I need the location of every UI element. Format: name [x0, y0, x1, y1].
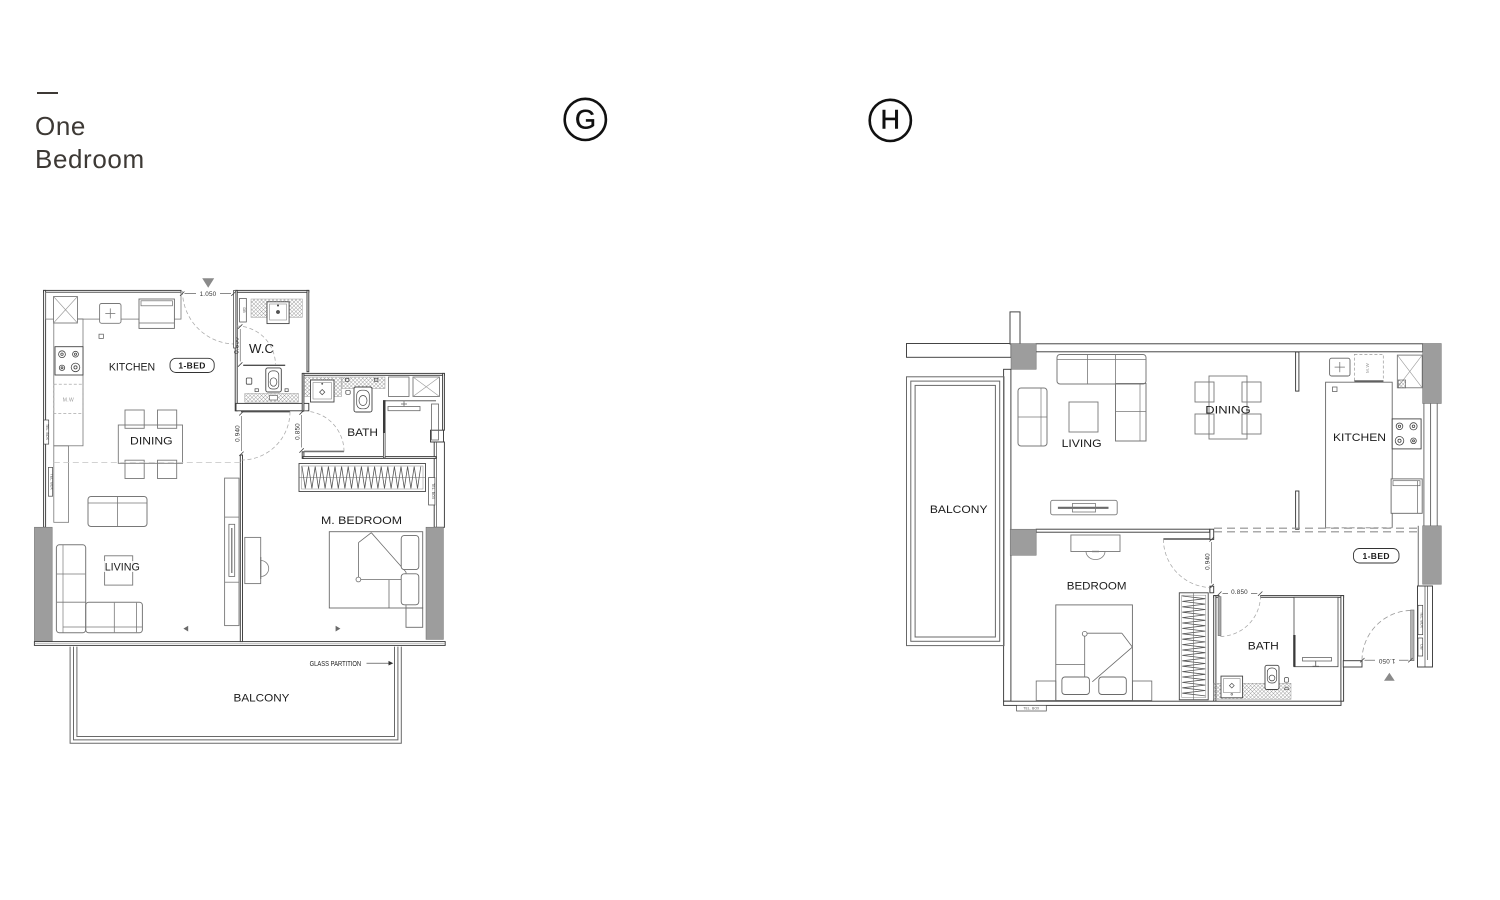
svg-text:KITCHEN: KITCHEN	[1333, 432, 1386, 444]
svg-text:GLASS PARTITION: GLASS PARTITION	[310, 661, 362, 668]
svg-text:H: H	[881, 104, 901, 134]
svg-text:0.940: 0.940	[235, 425, 242, 442]
svg-text:DINING: DINING	[130, 436, 173, 448]
svg-text:BALCONY: BALCONY	[234, 693, 291, 705]
svg-text:BATH: BATH	[1248, 641, 1279, 653]
svg-text:TEL. BOX: TEL. BOX	[1023, 707, 1040, 711]
svg-text:M. BEDROOM: M. BEDROOM	[321, 515, 402, 527]
svg-text:TEL. BOX: TEL. BOX	[1419, 612, 1423, 629]
svg-text:LIVING: LIVING	[105, 562, 140, 574]
svg-text:G: G	[575, 104, 596, 134]
svg-text:M.W: M.W	[1365, 363, 1370, 373]
svg-text:BALCONY: BALCONY	[930, 504, 988, 516]
svg-text:LIVING: LIVING	[1062, 438, 1102, 450]
svg-text:1.050: 1.050	[1378, 657, 1395, 664]
svg-text:TEL. BOX: TEL. BOX	[50, 474, 54, 491]
svg-text:M.W: M.W	[63, 398, 74, 404]
svg-text:BEDROOM: BEDROOM	[1067, 580, 1127, 592]
svg-text:0.850: 0.850	[295, 423, 302, 440]
svg-text:BATH: BATH	[347, 427, 378, 439]
svg-text:1.050: 1.050	[200, 291, 217, 298]
svg-text:0.940: 0.940	[1205, 553, 1212, 570]
svg-text:DB: DB	[242, 307, 246, 313]
svg-text:TEL. BOX: TEL. BOX	[431, 483, 435, 500]
svg-text:TEL. BOX: TEL. BOX	[45, 424, 49, 441]
svg-text:KITCHEN: KITCHEN	[109, 361, 155, 373]
svg-text:DINING: DINING	[1205, 404, 1250, 416]
svg-text:0.850: 0.850	[1231, 589, 1248, 596]
svg-text:W.C: W.C	[249, 342, 274, 356]
svg-text:1-BED: 1-BED	[1362, 551, 1390, 561]
svg-text:1-BED: 1-BED	[178, 360, 206, 370]
svg-text:DB: DB	[1419, 644, 1423, 650]
